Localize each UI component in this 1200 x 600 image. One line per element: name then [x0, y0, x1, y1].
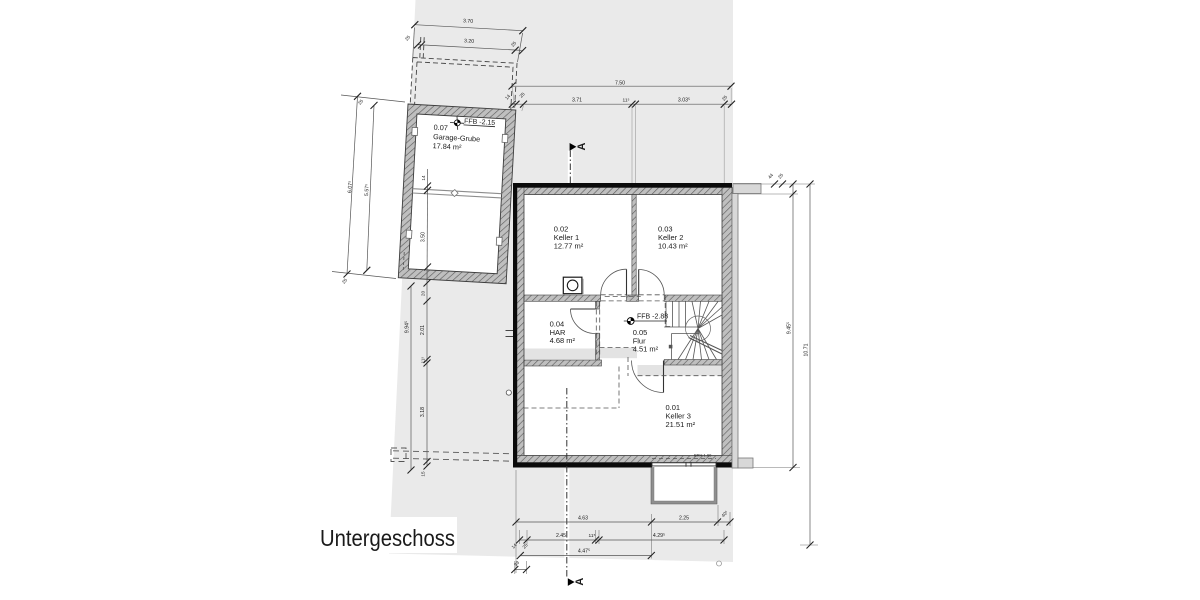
- svg-text:3.20: 3.20: [464, 38, 475, 45]
- svg-text:7.50: 7.50: [615, 80, 625, 86]
- svg-text:11⁵: 11⁵: [589, 533, 596, 539]
- svg-text:12.77 m²: 12.77 m²: [554, 241, 584, 250]
- svg-text:3.70: 3.70: [463, 18, 474, 25]
- svg-text:15: 15: [421, 471, 426, 477]
- svg-text:A: A: [576, 142, 588, 150]
- svg-text:3.50: 3.50: [420, 232, 426, 242]
- svg-text:A: A: [574, 578, 586, 586]
- svg-text:44: 44: [767, 172, 774, 179]
- svg-text:25: 25: [777, 172, 784, 179]
- svg-text:0.07: 0.07: [433, 123, 448, 133]
- svg-text:21.51 m²: 21.51 m²: [666, 420, 696, 429]
- svg-text:14: 14: [421, 175, 426, 181]
- svg-text:3.71: 3.71: [572, 98, 582, 104]
- svg-text:BRH 1.00: BRH 1.00: [694, 453, 712, 458]
- svg-text:25: 25: [357, 98, 364, 105]
- svg-text:3.18: 3.18: [420, 407, 426, 417]
- svg-text:25: 25: [341, 277, 348, 284]
- svg-text:4.29⁵: 4.29⁵: [653, 533, 665, 539]
- svg-text:17.84 m²: 17.84 m²: [432, 141, 462, 152]
- svg-text:4.63: 4.63: [578, 516, 588, 522]
- svg-text:10.43 m²: 10.43 m²: [658, 241, 688, 250]
- svg-text:11⁵: 11⁵: [623, 98, 630, 104]
- svg-text:FFB -2.88: FFB -2.88: [637, 314, 668, 321]
- svg-text:10.71: 10.71: [804, 343, 810, 356]
- svg-text:4.68 m²: 4.68 m²: [550, 336, 576, 345]
- svg-text:2.01: 2.01: [420, 325, 426, 335]
- svg-text:2.45: 2.45: [556, 533, 566, 539]
- svg-text:4.47⁵: 4.47⁵: [578, 549, 590, 555]
- svg-text:9.94⁵: 9.94⁵: [404, 321, 410, 333]
- svg-text:9.45⁵: 9.45⁵: [787, 322, 793, 334]
- svg-text:20: 20: [421, 291, 426, 297]
- svg-text:6.07⁵: 6.07⁵: [347, 181, 354, 194]
- svg-text:39: 39: [513, 560, 520, 567]
- svg-text:2.25: 2.25: [679, 516, 689, 522]
- svg-text:5.57⁵: 5.57⁵: [364, 184, 371, 197]
- svg-text:3.03⁵: 3.03⁵: [678, 98, 690, 104]
- svg-text:11⁵: 11⁵: [421, 357, 426, 364]
- svg-text:25: 25: [404, 34, 411, 41]
- svg-text:Untergeschoss: Untergeschoss: [320, 525, 455, 551]
- svg-text:4.51 m²: 4.51 m²: [633, 345, 659, 354]
